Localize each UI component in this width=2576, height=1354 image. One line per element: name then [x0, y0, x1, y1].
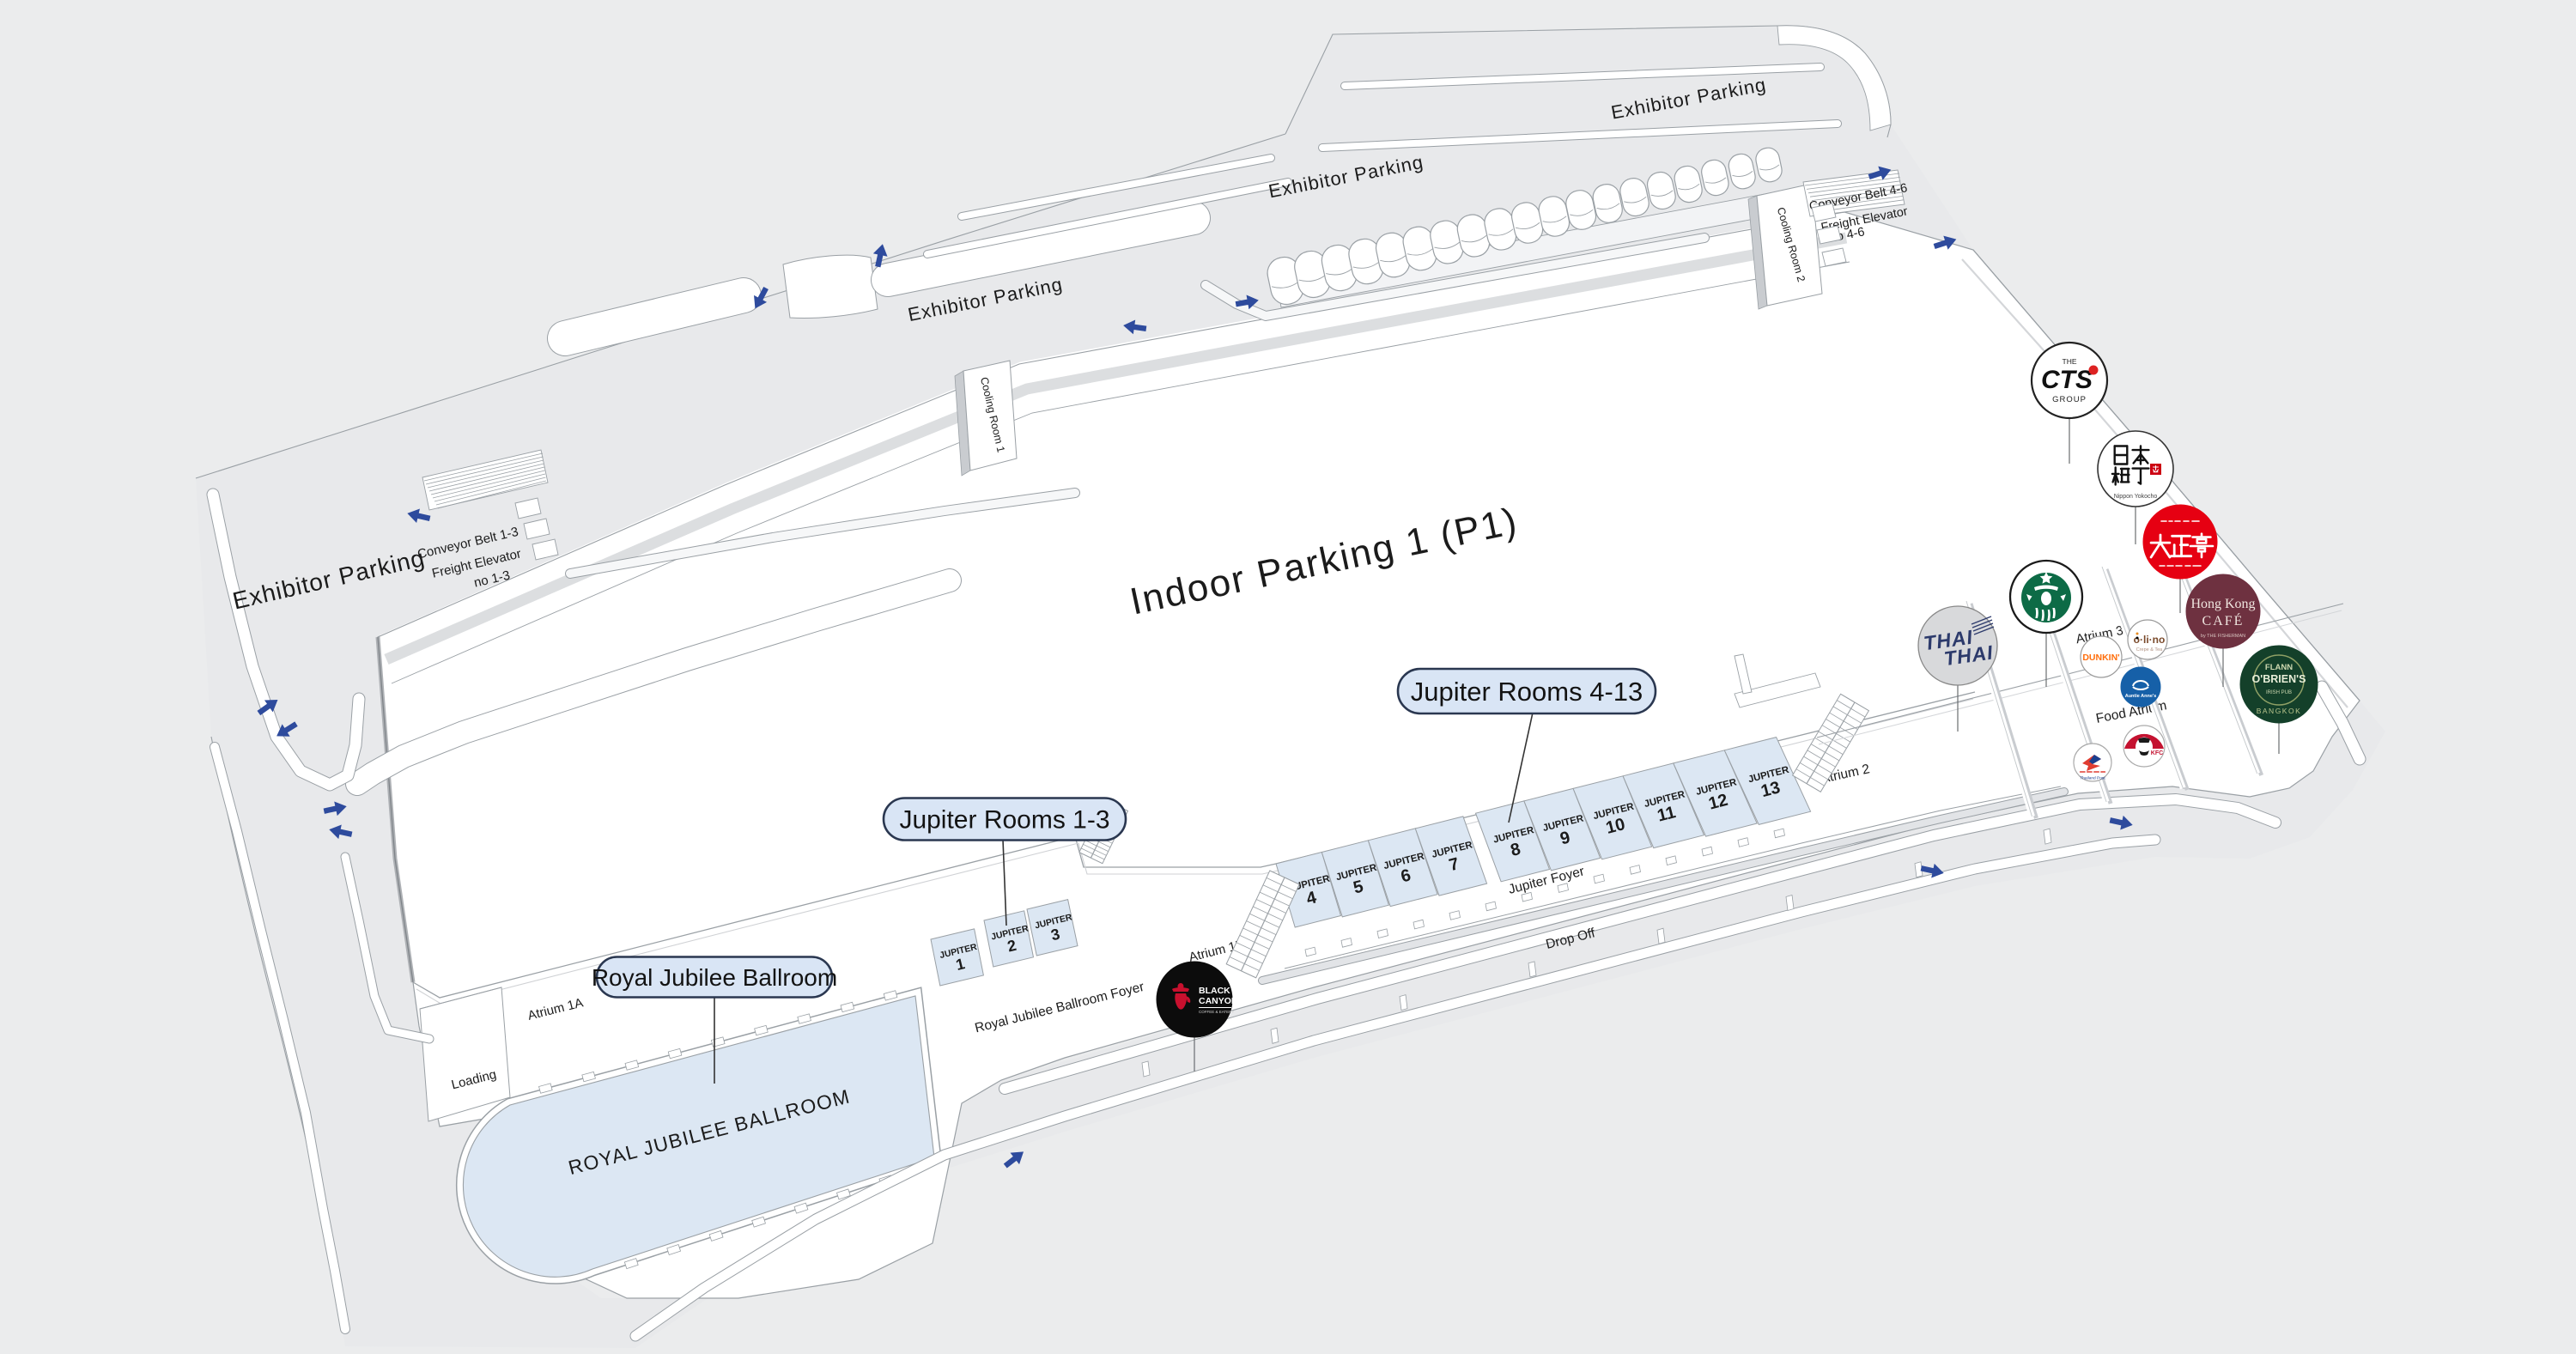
svg-text:COFFEE & EATERY: COFFEE & EATERY — [1199, 1010, 1234, 1014]
svg-text:o·li·no: o·li·no — [2134, 634, 2166, 646]
svg-text:Crepe & Tea: Crepe & Tea — [2136, 647, 2163, 653]
svg-text:BANGKOK: BANGKOK — [2257, 707, 2302, 715]
svg-text:Jupiter Rooms 4-13: Jupiter Rooms 4-13 — [1411, 677, 1643, 707]
svg-text:O'BRIEN'S: O'BRIEN'S — [2252, 673, 2306, 685]
svg-text:Hong Kong: Hong Kong — [2190, 597, 2255, 611]
svg-text:FLANN: FLANN — [2265, 663, 2293, 672]
svg-text:Auntie Anne's: Auntie Anne's — [2125, 694, 2157, 699]
svg-text:CAFÉ: CAFÉ — [2202, 612, 2245, 628]
svg-text:Thailand Post: Thailand Post — [2080, 776, 2105, 781]
svg-text:CANYON: CANYON — [1199, 996, 1238, 1006]
svg-text:IRISH PUB: IRISH PUB — [2266, 690, 2292, 695]
svg-text:Nippon Yokocho: Nippon Yokocho — [2114, 494, 2158, 500]
svg-text:BLACK: BLACK — [1199, 986, 1230, 996]
svg-text:Royal Jubilee Ballroom: Royal Jubilee Ballroom — [592, 964, 837, 991]
svg-text:DUNKIN': DUNKIN' — [2082, 653, 2119, 663]
svg-text:by THE FISHERMAN: by THE FISHERMAN — [2201, 634, 2245, 639]
svg-text:THE: THE — [2063, 357, 2077, 366]
svg-text:GROUP: GROUP — [2052, 395, 2087, 404]
svg-text:KFC: KFC — [2151, 750, 2163, 756]
svg-text:CTS: CTS — [2041, 366, 2093, 394]
svg-text:Jupiter Rooms 1-3: Jupiter Rooms 1-3 — [899, 806, 1109, 835]
